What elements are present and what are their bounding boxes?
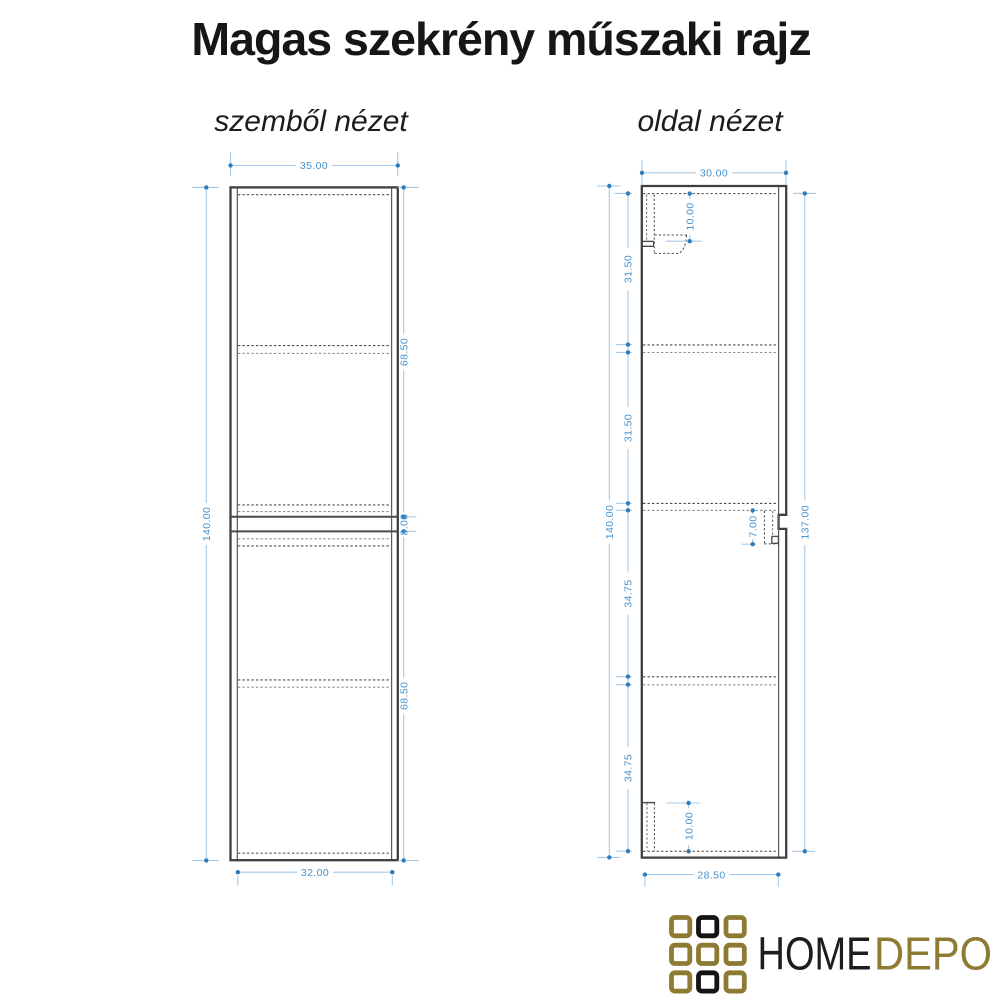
svg-text:HOME: HOME	[758, 928, 872, 980]
svg-text:28.50: 28.50	[697, 869, 725, 881]
svg-text:31.50: 31.50	[623, 255, 635, 283]
svg-text:8.00: 8.00	[398, 513, 410, 535]
svg-text:68.50: 68.50	[398, 338, 410, 366]
svg-text:32.00: 32.00	[301, 867, 329, 879]
svg-text:10.00: 10.00	[684, 202, 696, 230]
svg-text:140.00: 140.00	[201, 507, 213, 542]
svg-text:31.50: 31.50	[623, 414, 635, 442]
svg-text:7.00: 7.00	[747, 515, 759, 537]
svg-text:szemből nézet: szemből nézet	[214, 105, 409, 138]
svg-text:34.75: 34.75	[623, 579, 635, 607]
svg-text:30.00: 30.00	[700, 168, 728, 180]
svg-text:10.00: 10.00	[683, 812, 695, 840]
svg-text:oldal nézet: oldal nézet	[637, 105, 784, 138]
svg-text:DEPO: DEPO	[874, 928, 992, 980]
svg-text:140.00: 140.00	[604, 505, 616, 540]
svg-text:Magas szekrény műszaki rajz: Magas szekrény műszaki rajz	[191, 13, 810, 65]
svg-text:34.75: 34.75	[623, 754, 635, 782]
svg-text:35.00: 35.00	[300, 160, 328, 172]
svg-text:137.00: 137.00	[800, 505, 812, 540]
svg-text:68.50: 68.50	[398, 682, 410, 710]
